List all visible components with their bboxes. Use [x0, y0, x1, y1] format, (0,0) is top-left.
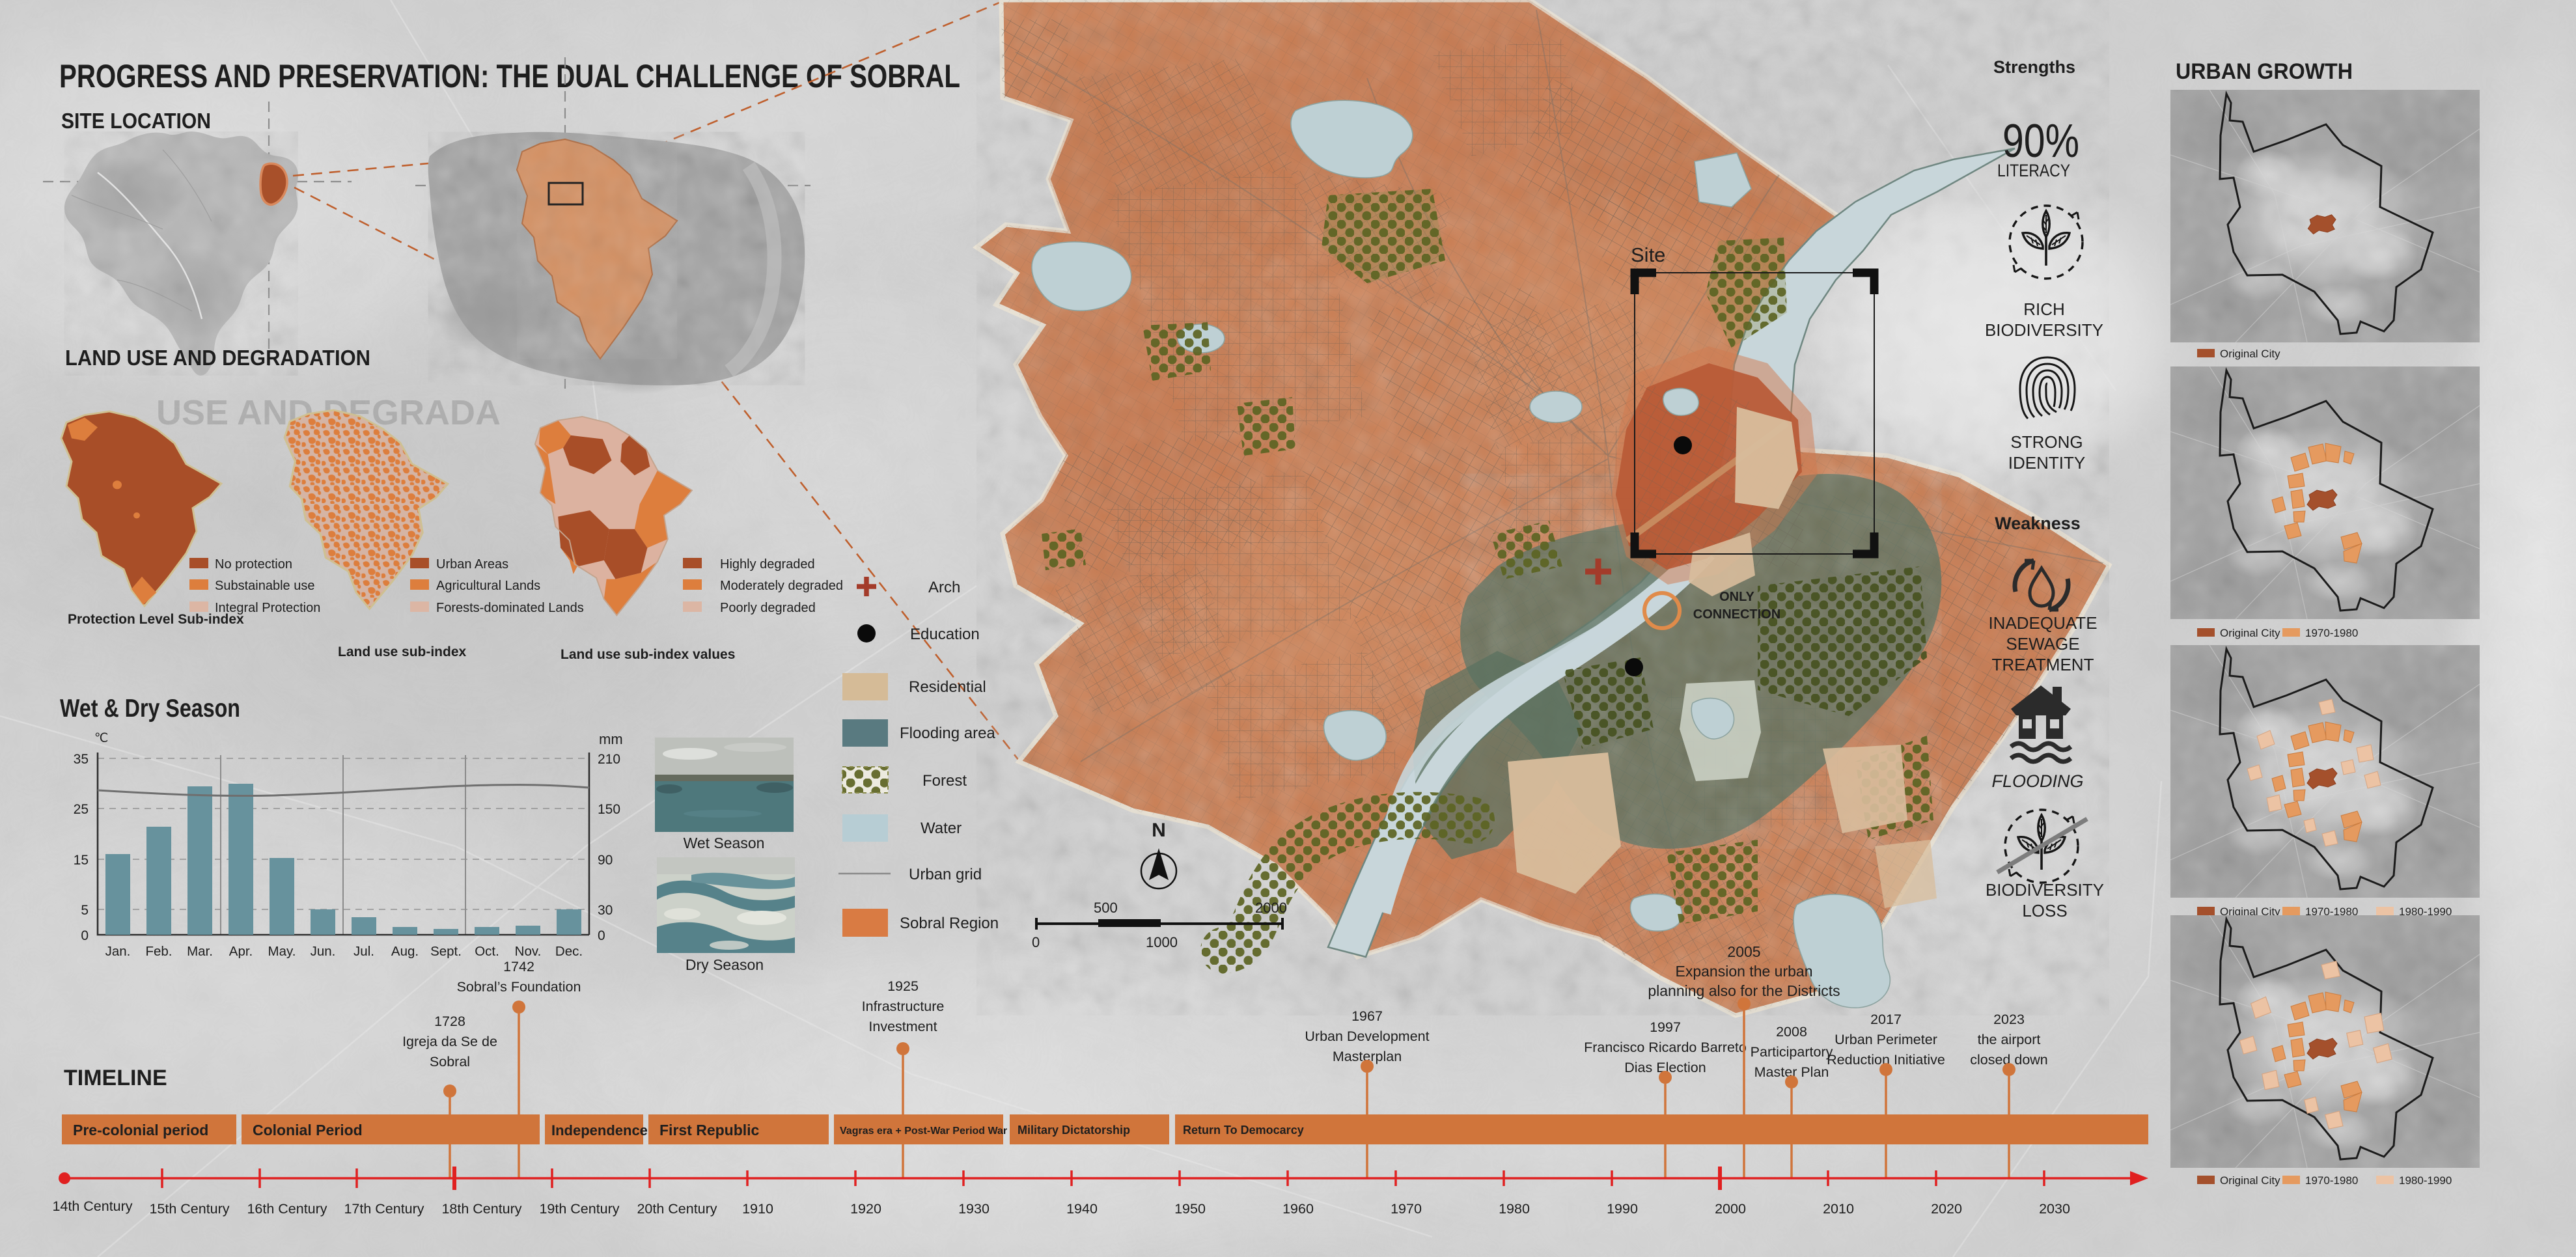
- svg-text:1970-1980: 1970-1980: [2305, 1174, 2358, 1187]
- svg-text:RICH: RICH: [2023, 299, 2065, 319]
- svg-text:1980: 1980: [1499, 1201, 1530, 1217]
- svg-text:1997: 1997: [1650, 1019, 1681, 1035]
- svg-text:Land use sub-index values: Land use sub-index values: [561, 647, 735, 662]
- svg-text:Wet Season: Wet Season: [684, 835, 765, 851]
- svg-text:the airport: the airport: [1978, 1032, 2041, 1047]
- svg-text:Jan.: Jan.: [105, 944, 131, 959]
- svg-text:Substainable use: Substainable use: [215, 579, 314, 593]
- svg-text:INADEQUATE: INADEQUATE: [1988, 613, 2097, 633]
- svg-text:20th Century: 20th Century: [637, 1201, 717, 1217]
- svg-text:1000: 1000: [1146, 934, 1178, 950]
- svg-text:1970: 1970: [1391, 1201, 1422, 1217]
- svg-text:Feb.: Feb.: [145, 944, 172, 959]
- svg-text:Original City: Original City: [2220, 1174, 2280, 1187]
- svg-text:Highly degraded: Highly degraded: [720, 557, 815, 572]
- svg-text:15: 15: [74, 853, 89, 868]
- svg-text:1910: 1910: [742, 1201, 773, 1217]
- svg-text:1920: 1920: [850, 1201, 881, 1217]
- svg-text:BIODIVERSITY: BIODIVERSITY: [1985, 320, 2103, 340]
- svg-text:FLOODING: FLOODING: [1991, 771, 2083, 791]
- svg-text:Sept.: Sept.: [430, 944, 462, 959]
- svg-text:90: 90: [598, 853, 613, 868]
- svg-text:N: N: [1152, 820, 1166, 841]
- svg-text:Mar.: Mar.: [187, 944, 213, 959]
- svg-text:Forests-dominated Lands: Forests-dominated Lands: [436, 601, 584, 615]
- svg-text:1925: 1925: [887, 978, 919, 994]
- svg-text:5: 5: [81, 903, 89, 918]
- svg-text:Participartory: Participartory: [1751, 1044, 1833, 1060]
- svg-text:Agricultural Lands: Agricultural Lands: [436, 579, 540, 593]
- svg-text:Oct.: Oct.: [475, 944, 499, 959]
- svg-text:Water: Water: [921, 820, 962, 837]
- svg-text:TIMELINE: TIMELINE: [64, 1066, 167, 1090]
- svg-text:Igreja da Se de: Igreja da Se de: [402, 1034, 497, 1049]
- svg-text:Education: Education: [910, 626, 980, 643]
- svg-text:Land use sub-index: Land use sub-index: [338, 644, 467, 659]
- svg-text:1940: 1940: [1066, 1201, 1098, 1217]
- svg-text:2008: 2008: [1776, 1024, 1807, 1040]
- svg-text:STRONG: STRONG: [2010, 432, 2083, 452]
- svg-text:Arch: Arch: [928, 579, 960, 596]
- svg-text:2005: 2005: [1727, 943, 1760, 960]
- svg-text:No protection: No protection: [215, 557, 292, 572]
- svg-text:Urban Perimeter: Urban Perimeter: [1835, 1032, 1937, 1047]
- svg-text:Aug.: Aug.: [391, 944, 419, 959]
- svg-text:Vagras era + Post-War Period W: Vagras era + Post-War Period War: [840, 1126, 1007, 1137]
- svg-text:Independence: Independence: [551, 1122, 648, 1139]
- svg-text:Weakness: Weakness: [1995, 514, 2081, 533]
- svg-text:Dry Season: Dry Season: [686, 956, 764, 973]
- svg-text:Jun.: Jun.: [311, 944, 336, 959]
- svg-text:LOSS: LOSS: [2022, 901, 2067, 920]
- svg-text:BIODIVERSITY: BIODIVERSITY: [1986, 880, 2104, 900]
- svg-text:May.: May.: [268, 944, 296, 959]
- svg-text:14th Century: 14th Century: [52, 1198, 132, 1214]
- svg-text:LITERACY: LITERACY: [1997, 161, 2070, 180]
- svg-text:First Republic: First Republic: [659, 1122, 760, 1139]
- svg-text:Military Dictatorship: Military Dictatorship: [1018, 1124, 1130, 1137]
- svg-text:Residential: Residential: [909, 678, 986, 696]
- svg-text:ONLY: ONLY: [1719, 590, 1754, 604]
- svg-text:SEWAGE: SEWAGE: [2006, 634, 2079, 654]
- svg-text:IDENTITY: IDENTITY: [2008, 453, 2085, 473]
- svg-text:1742: 1742: [503, 959, 534, 974]
- svg-text:1960: 1960: [1282, 1201, 1314, 1217]
- svg-text:Flooding area: Flooding area: [900, 725, 995, 742]
- svg-text:17th Century: 17th Century: [344, 1201, 424, 1217]
- svg-text:URBAN GROWTH: URBAN GROWTH: [2176, 59, 2353, 84]
- svg-text:SITE LOCATION: SITE LOCATION: [61, 109, 211, 133]
- svg-text:Investment: Investment: [868, 1019, 937, 1034]
- svg-text:35: 35: [74, 752, 89, 767]
- svg-text:Urban Development: Urban Development: [1305, 1029, 1429, 1044]
- svg-text:planning also for the District: planning also for the Districts: [1648, 982, 1840, 999]
- svg-text:30: 30: [598, 903, 613, 918]
- svg-text:PROGRESS AND PRESERVATION: THE: PROGRESS AND PRESERVATION: THE DUAL CHAL…: [59, 58, 960, 94]
- svg-text:150: 150: [598, 802, 620, 817]
- svg-text:15th Century: 15th Century: [149, 1201, 229, 1217]
- svg-text:Poorly degraded: Poorly degraded: [720, 601, 816, 615]
- svg-text:0: 0: [1032, 934, 1040, 950]
- svg-text:2030: 2030: [2039, 1201, 2070, 1217]
- svg-text:℃: ℃: [94, 732, 108, 745]
- svg-text:2020: 2020: [1931, 1201, 1962, 1217]
- svg-text:mm: mm: [599, 731, 623, 747]
- svg-text:Wet & Dry Season: Wet & Dry Season: [60, 695, 240, 723]
- svg-text:1990: 1990: [1607, 1201, 1638, 1217]
- svg-text:25: 25: [74, 802, 89, 817]
- svg-text:Return To Democarcy: Return To Democarcy: [1183, 1124, 1304, 1137]
- svg-text:1970-1980: 1970-1980: [2305, 627, 2358, 639]
- svg-text:2010: 2010: [1823, 1201, 1854, 1217]
- svg-text:1930: 1930: [958, 1201, 990, 1217]
- svg-text:Infrastructure: Infrastructure: [862, 999, 945, 1014]
- svg-text:Urban grid: Urban grid: [909, 866, 982, 883]
- svg-text:1967: 1967: [1351, 1008, 1383, 1024]
- svg-text:1950: 1950: [1174, 1201, 1206, 1217]
- svg-text:18th Century: 18th Century: [441, 1201, 521, 1217]
- svg-text:Moderately degraded: Moderately degraded: [720, 579, 843, 593]
- svg-text:210: 210: [598, 752, 620, 767]
- svg-text:Sobral: Sobral: [430, 1054, 470, 1070]
- svg-text:Dec.: Dec.: [555, 944, 583, 959]
- svg-text:Nov.: Nov.: [515, 944, 542, 959]
- svg-text:Expansion the urban: Expansion the urban: [1676, 963, 1813, 980]
- svg-text:1728: 1728: [434, 1014, 465, 1029]
- svg-text:Jul.: Jul.: [353, 944, 374, 959]
- svg-text:Pre-colonial period: Pre-colonial period: [73, 1122, 208, 1139]
- svg-text:Original City: Original City: [2220, 348, 2280, 360]
- svg-text:Site: Site: [1631, 243, 1665, 266]
- svg-text:1980-1990: 1980-1990: [2399, 1174, 2452, 1187]
- svg-text:0: 0: [81, 928, 89, 943]
- svg-text:2023: 2023: [1993, 1012, 2025, 1027]
- svg-text:2017: 2017: [1870, 1012, 1902, 1027]
- svg-text:LAND USE AND DEGRADATION: LAND USE AND DEGRADATION: [65, 346, 370, 370]
- svg-text:Apr.: Apr.: [229, 944, 253, 959]
- svg-text:500: 500: [1094, 900, 1118, 916]
- svg-text:0: 0: [598, 928, 605, 943]
- svg-text:2000: 2000: [1255, 900, 1287, 916]
- svg-text:Francisco Ricardo Barreto: Francisco Ricardo Barreto: [1584, 1040, 1747, 1055]
- svg-text:Protection Level Sub-index: Protection Level Sub-index: [68, 612, 244, 627]
- svg-text:Sobral’s Foundation: Sobral’s Foundation: [457, 979, 581, 995]
- svg-text:Sobral Region: Sobral Region: [900, 915, 999, 932]
- svg-text:CONNECTION: CONNECTION: [1693, 607, 1780, 622]
- svg-text:90%: 90%: [2002, 115, 2079, 167]
- svg-text:Original City: Original City: [2220, 627, 2280, 639]
- svg-text:16th Century: 16th Century: [247, 1201, 327, 1217]
- svg-text:19th Century: 19th Century: [539, 1201, 619, 1217]
- svg-text:2000: 2000: [1715, 1201, 1746, 1217]
- svg-text:TREATMENT: TREATMENT: [1992, 655, 2094, 674]
- svg-text:Strengths: Strengths: [1993, 57, 2075, 77]
- svg-text:Colonial Period: Colonial Period: [253, 1122, 363, 1139]
- svg-text:Urban Areas: Urban Areas: [436, 557, 508, 572]
- svg-text:Forest: Forest: [922, 772, 967, 790]
